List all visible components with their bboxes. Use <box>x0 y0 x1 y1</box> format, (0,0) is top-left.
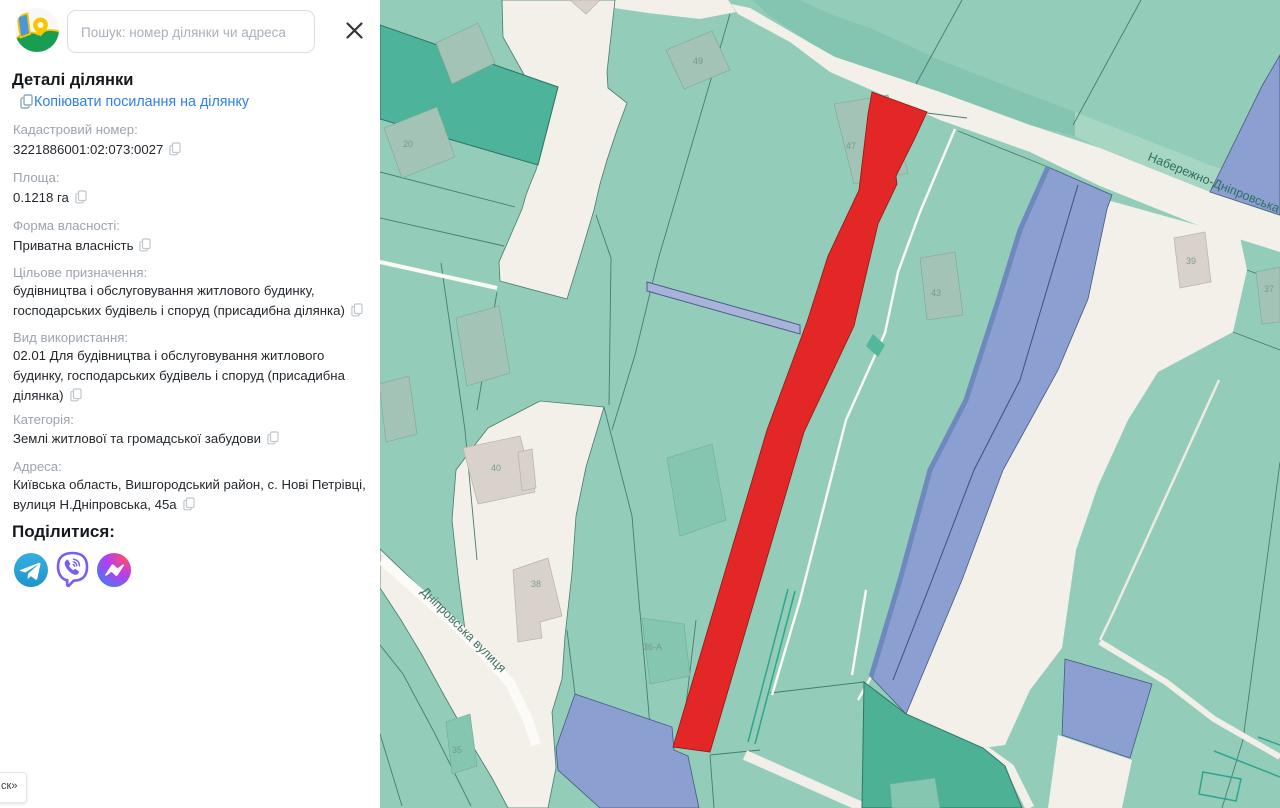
svg-text:37: 37 <box>1264 284 1274 294</box>
svg-text:36-А: 36-А <box>643 642 662 652</box>
svg-text:38: 38 <box>531 579 541 589</box>
svg-text:43: 43 <box>931 288 941 298</box>
svg-text:40: 40 <box>491 463 501 473</box>
svg-text:49: 49 <box>693 56 703 66</box>
svg-text:20: 20 <box>403 139 413 149</box>
svg-text:39: 39 <box>1186 256 1196 266</box>
svg-text:47: 47 <box>846 141 856 151</box>
svg-text:35: 35 <box>452 745 462 755</box>
